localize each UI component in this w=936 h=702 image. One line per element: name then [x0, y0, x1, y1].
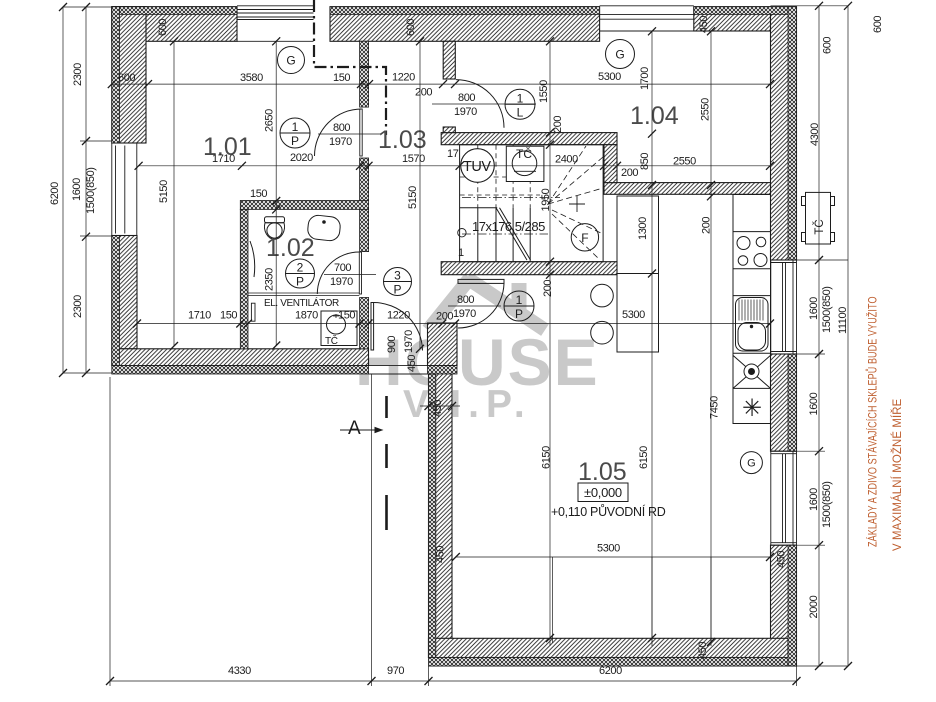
svg-text:EL. VENTILÁTOR: EL. VENTILÁTOR	[264, 296, 339, 309]
svg-text:450: 450	[406, 355, 418, 372]
svg-text:800: 800	[458, 92, 475, 104]
svg-text:1220: 1220	[392, 72, 415, 84]
svg-text:P: P	[296, 275, 304, 289]
svg-text:6150: 6150	[638, 446, 650, 469]
svg-text:150: 150	[338, 310, 355, 322]
svg-text:✳: ✳	[742, 395, 762, 422]
svg-text:1: 1	[516, 293, 523, 307]
svg-text:1.03: 1.03	[378, 126, 427, 154]
svg-text:1710: 1710	[212, 153, 235, 165]
svg-text:7450: 7450	[709, 396, 721, 419]
svg-text:G: G	[286, 54, 295, 68]
svg-text:1970: 1970	[453, 308, 476, 320]
svg-text:5300: 5300	[597, 543, 620, 555]
svg-text:4300: 4300	[809, 123, 821, 146]
svg-text:17: 17	[447, 148, 459, 160]
svg-text:2020: 2020	[290, 152, 313, 164]
svg-text:2: 2	[297, 261, 304, 275]
svg-text:1: 1	[458, 247, 464, 259]
svg-text:2300: 2300	[72, 63, 84, 86]
svg-text:1.05: 1.05	[578, 458, 627, 486]
svg-text:6200: 6200	[599, 665, 622, 677]
svg-text:2550: 2550	[673, 156, 696, 168]
svg-text:A: A	[348, 418, 361, 439]
svg-text:±0,000: ±0,000	[584, 485, 622, 500]
svg-text:200: 200	[552, 116, 564, 133]
svg-text:1710: 1710	[188, 310, 211, 322]
svg-text:600: 600	[405, 19, 417, 36]
svg-text:200: 200	[542, 280, 554, 297]
svg-text:1970: 1970	[330, 276, 353, 288]
svg-text:1700: 1700	[639, 67, 651, 90]
svg-text:5150: 5150	[407, 186, 419, 209]
svg-text:TUV: TUV	[463, 159, 491, 175]
svg-text:1220: 1220	[387, 310, 410, 322]
svg-text:G: G	[747, 458, 756, 470]
svg-text:1500(850): 1500(850)	[85, 167, 97, 214]
svg-text:600: 600	[822, 37, 834, 54]
svg-text:V.I.P.: V.I.P.	[403, 383, 532, 426]
svg-text:TČ: TČ	[813, 219, 826, 234]
svg-text:+0,110 PŮVODNÍ RD: +0,110 PŮVODNÍ RD	[551, 504, 666, 519]
svg-text:3580: 3580	[240, 72, 263, 84]
svg-text:200: 200	[701, 217, 713, 234]
svg-text:1950: 1950	[540, 188, 552, 211]
svg-text:200: 200	[621, 167, 638, 179]
svg-text:450: 450	[697, 642, 709, 659]
svg-text:1.04: 1.04	[630, 102, 679, 130]
svg-text:1600: 1600	[808, 392, 820, 415]
svg-text:970: 970	[387, 665, 404, 677]
svg-text:1300: 1300	[637, 217, 649, 240]
svg-text:P: P	[393, 283, 401, 297]
svg-text:11100: 11100	[837, 307, 849, 334]
svg-text:1600: 1600	[71, 178, 83, 201]
svg-text:G: G	[615, 48, 624, 62]
svg-text:1.02: 1.02	[266, 234, 315, 262]
svg-text:2350: 2350	[264, 268, 276, 291]
svg-text:1970: 1970	[329, 136, 352, 148]
svg-text:P: P	[515, 307, 523, 321]
svg-text:600: 600	[118, 72, 135, 84]
svg-text:2300: 2300	[72, 295, 84, 318]
svg-text:1870: 1870	[295, 310, 318, 322]
svg-text:V MAXIMÁLNÍ MOŽNÉ MÍŘE: V MAXIMÁLNÍ MOŽNÉ MÍŘE	[891, 399, 904, 551]
svg-text:800: 800	[333, 122, 350, 134]
svg-text:450: 450	[698, 16, 710, 33]
svg-text:5150: 5150	[158, 180, 170, 203]
svg-text:ZÁKLADY A ZDIVO STÁVAJÍCÍCH: ZÁKLADY A ZDIVO STÁVAJÍCÍCH SKLEPŮ BUDE …	[865, 296, 880, 547]
svg-text:4330: 4330	[228, 665, 251, 677]
svg-text:1600: 1600	[808, 488, 820, 511]
svg-text:900: 900	[386, 336, 398, 353]
svg-text:17x176,5/285: 17x176,5/285	[472, 219, 545, 234]
svg-text:5300: 5300	[598, 71, 621, 83]
svg-text:1970: 1970	[403, 330, 415, 353]
svg-text:1: 1	[517, 91, 524, 105]
svg-text:150: 150	[250, 188, 267, 200]
svg-text:600: 600	[157, 19, 169, 36]
svg-text:1500(850): 1500(850)	[821, 286, 833, 333]
svg-text:P: P	[291, 134, 299, 148]
svg-text:850: 850	[639, 153, 651, 170]
svg-text:1970: 1970	[454, 106, 477, 118]
svg-text:150: 150	[333, 72, 350, 84]
svg-text:F: F	[581, 231, 588, 245]
svg-text:2650: 2650	[264, 109, 276, 132]
svg-text:800: 800	[457, 294, 474, 306]
svg-text:1: 1	[292, 120, 299, 134]
svg-text:150: 150	[220, 310, 237, 322]
svg-text:1550: 1550	[538, 80, 550, 103]
svg-text:450: 450	[435, 546, 447, 563]
svg-text:1500(850): 1500(850)	[821, 481, 833, 528]
svg-text:2000: 2000	[808, 595, 820, 618]
svg-text:600: 600	[872, 16, 884, 33]
svg-text:200: 200	[436, 311, 453, 323]
svg-text:5300: 5300	[622, 309, 645, 321]
svg-text:2550: 2550	[700, 98, 712, 121]
svg-text:450: 450	[776, 551, 788, 568]
svg-text:TČ: TČ	[516, 146, 532, 161]
svg-text:450: 450	[432, 400, 444, 417]
svg-text:700: 700	[334, 262, 351, 274]
svg-text:L: L	[517, 105, 524, 119]
svg-text:3: 3	[394, 269, 401, 283]
svg-text:1600: 1600	[808, 297, 820, 320]
svg-text:200: 200	[415, 87, 432, 99]
svg-text:6200: 6200	[49, 182, 61, 205]
svg-text:6150: 6150	[541, 446, 553, 469]
svg-text:1570: 1570	[402, 153, 425, 165]
svg-text:2400: 2400	[555, 154, 578, 166]
svg-text:TČ: TČ	[325, 334, 338, 347]
